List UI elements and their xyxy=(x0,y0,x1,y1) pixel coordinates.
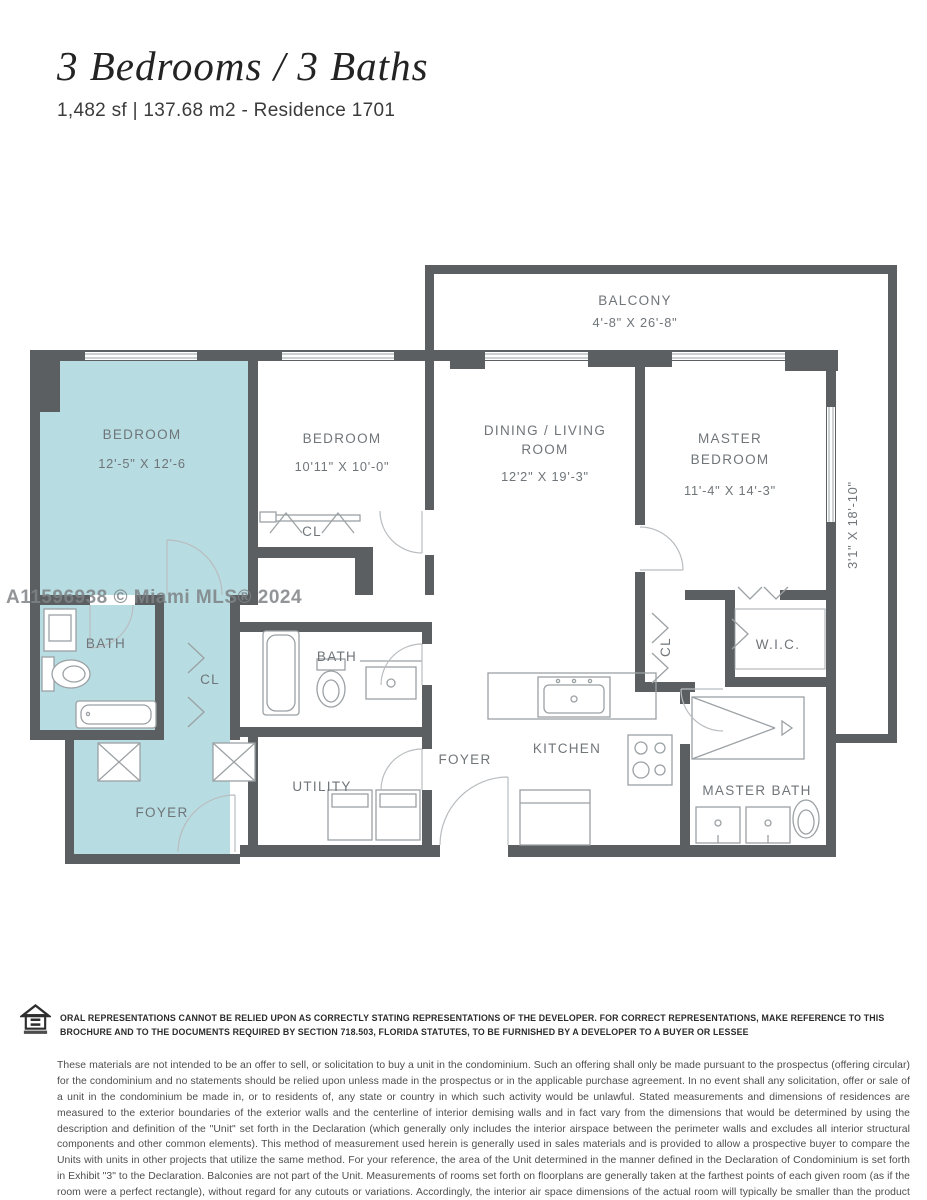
legal-disclaimer: These materials are not intended to be a… xyxy=(57,1058,910,1200)
sink-fixture xyxy=(746,807,790,843)
washer-fixture xyxy=(328,790,372,840)
closet-label-master: CL xyxy=(658,637,673,657)
bathtub-fixture xyxy=(76,701,156,728)
toilet-fixture xyxy=(793,800,819,838)
room-dims-dining-living: 12'2" X 19'-3" xyxy=(501,469,589,484)
page-header: 3 Bedrooms / 3 Baths 1,482 sf | 137.68 m… xyxy=(57,44,429,122)
fridge-fixture xyxy=(520,790,590,845)
shaft-box xyxy=(98,743,140,781)
shaft-box xyxy=(213,743,255,781)
room-label-utility: UTILITY xyxy=(292,779,351,794)
room-label-master-bath: MASTER BATH xyxy=(702,783,811,798)
closet-label-corridor: CL xyxy=(200,672,220,687)
room-dims-bedroom-1: 12'-5" X 12'-6 xyxy=(98,456,186,471)
page-title: 3 Bedrooms / 3 Baths xyxy=(57,44,429,89)
brochure-page: 3 Bedrooms / 3 Baths 1,482 sf | 137.68 m… xyxy=(0,0,927,1200)
room-label-bedroom-1: BEDROOM xyxy=(103,427,182,442)
closet-rod xyxy=(260,512,360,522)
window xyxy=(282,352,394,360)
room-label-bath-2: BATH xyxy=(317,649,357,664)
room-label-foyer-unit: FOYER xyxy=(135,805,188,820)
floor-plan-drawing: BALCONY 4'-8" X 26'-8" BEDROOM 12'-5" X … xyxy=(30,257,897,875)
room-label-bath-1: BATH xyxy=(86,636,126,651)
bathtub-fixture xyxy=(263,631,299,715)
room-dims-balcony: 4'-8" X 26'-8" xyxy=(593,315,678,330)
room-label-foyer-main: FOYER xyxy=(438,752,491,767)
window xyxy=(85,352,197,360)
page-subtitle: 1,482 sf | 137.68 m2 - Residence 1701 xyxy=(57,100,429,122)
sink-fixture xyxy=(44,609,76,651)
floor-plan: A11596938 © Miami MLS® 2024 xyxy=(30,257,897,875)
shower-fixture xyxy=(692,697,804,759)
sink-fixture xyxy=(696,807,740,843)
toilet-fixture xyxy=(317,659,345,707)
mls-watermark: A11596938 © Miami MLS® 2024 xyxy=(6,587,302,609)
closet-label-bedroom-2: CL xyxy=(302,524,322,539)
room-label-dining-living-2: ROOM xyxy=(521,442,568,457)
legal-notice: ORAL REPRESENTATIONS CANNOT BE RELIED UP… xyxy=(20,1002,907,1048)
room-dims-side-balcony: 3'1" X 18'-10" xyxy=(845,481,860,569)
room-label-balcony: BALCONY xyxy=(598,293,672,308)
room-label-kitchen: KITCHEN xyxy=(533,741,601,756)
sliding-door xyxy=(672,352,785,360)
kitchen-sink-fixture xyxy=(538,677,610,717)
legal-notice-text: ORAL REPRESENTATIONS CANNOT BE RELIED UP… xyxy=(60,1011,907,1039)
sink-fixture xyxy=(360,661,422,699)
stove-fixture xyxy=(628,735,672,785)
sliding-door xyxy=(485,352,588,360)
room-label-master-bedroom-2: BEDROOM xyxy=(691,452,770,467)
equal-housing-icon xyxy=(20,1002,51,1035)
room-dims-bedroom-2: 10'11" X 10'-0" xyxy=(295,459,390,474)
room-label-master-bedroom-1: MASTER xyxy=(698,431,762,446)
room-dims-master-bedroom: 11'-4" X 14'-3" xyxy=(684,483,776,498)
room-label-wic: W.I.C. xyxy=(756,637,801,652)
room-label-bedroom-2: BEDROOM xyxy=(303,431,382,446)
dryer-fixture xyxy=(376,790,420,840)
window xyxy=(827,407,835,522)
room-label-dining-living-1: DINING / LIVING xyxy=(484,423,606,438)
